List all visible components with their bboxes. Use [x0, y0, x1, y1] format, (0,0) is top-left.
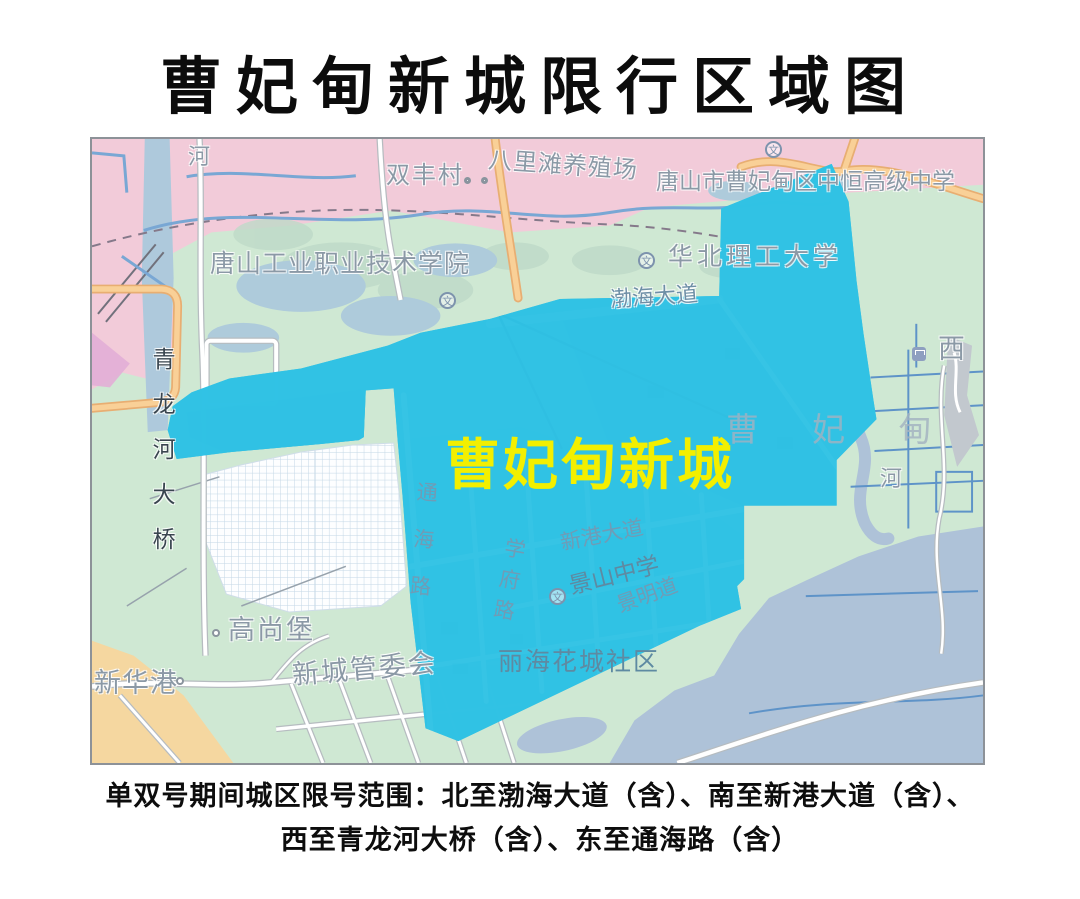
caption-line1: 单双号期间城区限号范围：北至渤海大道（含）、南至新港大道（含）、 [50, 774, 1030, 818]
label-river-top: 河 [188, 145, 210, 168]
label-zhongheng-school: 唐山市曹妃甸区中恒高级中学 [656, 169, 955, 193]
zone-watermark: 曹 妃 甸 新 城 [726, 403, 985, 451]
label-tangshan-college: 唐山工业职业技术学院 [210, 251, 470, 277]
label-lihai-community: 丽海花城社区 [498, 649, 660, 675]
label-west-station: 西 [938, 335, 965, 363]
caption-block: 单双号期间城区限号范围：北至渤海大道（含）、南至新港大道（含）、 西至青龙河大桥… [50, 774, 1030, 862]
page-title: 曹妃甸新城限行区域图 [0, 36, 1080, 126]
label-bohai-avenue: 渤海大道 [609, 282, 698, 311]
place-dot-marker [176, 677, 184, 685]
label-shuangfeng-village: 双丰村 [386, 163, 464, 188]
label-xinhuagang: 新华港 [94, 669, 178, 697]
school-icon: 文 [439, 292, 456, 309]
label-huabei-university: 华北理工大学 [668, 244, 842, 270]
label-gaoshangbao: 高尚堡 [228, 616, 315, 644]
school-icon: 文 [765, 141, 782, 158]
label-qinglonghe-bridge: 青龙河大桥 [150, 347, 174, 572]
zone-name-label: 曹妃甸新城 [445, 420, 735, 500]
map-frame: 河 双丰村 八里滩养殖场 唐山市曹妃甸区中恒高级中学 唐山工业职业技术学院 华北… [90, 137, 985, 765]
place-dot-marker [212, 629, 220, 637]
caption-line2: 西至青龙河大桥（含）、东至通海路（含） [50, 818, 1030, 862]
school-icon: 文 [638, 252, 655, 269]
label-river-right: 河 [880, 467, 902, 490]
village-dot-marker [481, 177, 488, 184]
school-icon: 文 [549, 588, 566, 605]
village-dot-marker [464, 177, 471, 184]
train-station-icon [912, 347, 926, 361]
zone-watermark-gray: 曹 妃 甸 [726, 411, 953, 448]
crosshatch-area [203, 443, 406, 612]
